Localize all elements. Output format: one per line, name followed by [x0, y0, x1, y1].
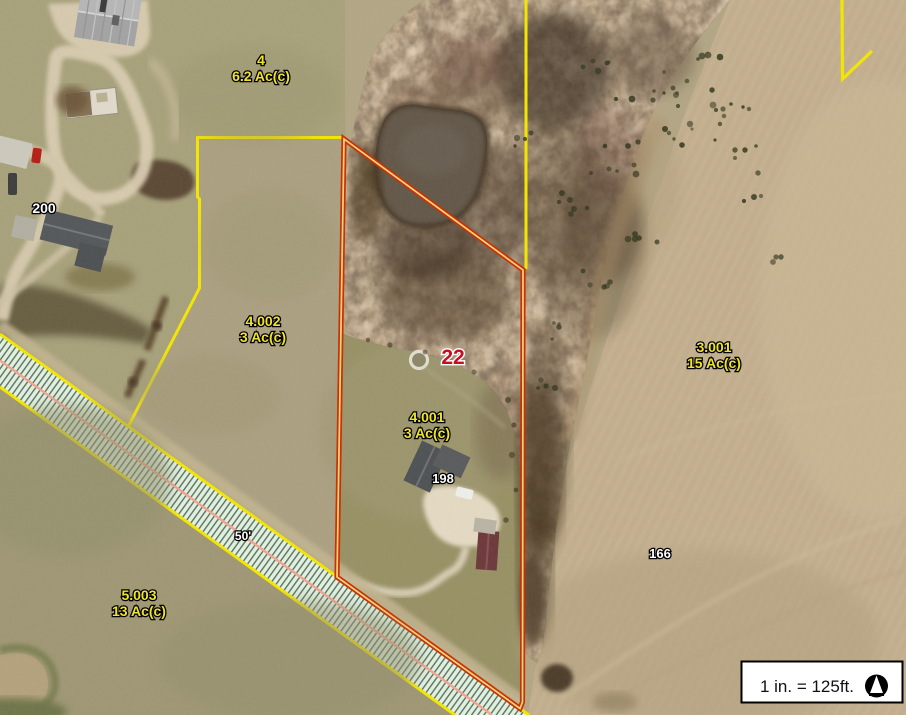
svg-text:166: 166 — [649, 546, 671, 561]
svg-text:3 Ac(c): 3 Ac(c) — [240, 329, 286, 345]
svg-text:3 Ac(c): 3 Ac(c) — [404, 425, 450, 441]
svg-text:13 Ac(c): 13 Ac(c) — [112, 603, 166, 619]
svg-text:4.002: 4.002 — [245, 313, 280, 329]
svg-text:200: 200 — [32, 200, 56, 216]
svg-text:22: 22 — [441, 346, 464, 369]
svg-text:1 in. = 125ft.: 1 in. = 125ft. — [760, 677, 854, 696]
svg-text:6.2 Ac(c): 6.2 Ac(c) — [232, 68, 290, 84]
svg-text:4: 4 — [257, 52, 265, 68]
svg-text:198: 198 — [432, 471, 454, 486]
svg-text:15 Ac(c): 15 Ac(c) — [687, 355, 741, 371]
svg-text:4.001: 4.001 — [409, 409, 444, 425]
svg-text:50': 50' — [235, 529, 251, 543]
svg-text:3.001: 3.001 — [696, 339, 731, 355]
svg-text:5.003: 5.003 — [121, 587, 156, 603]
